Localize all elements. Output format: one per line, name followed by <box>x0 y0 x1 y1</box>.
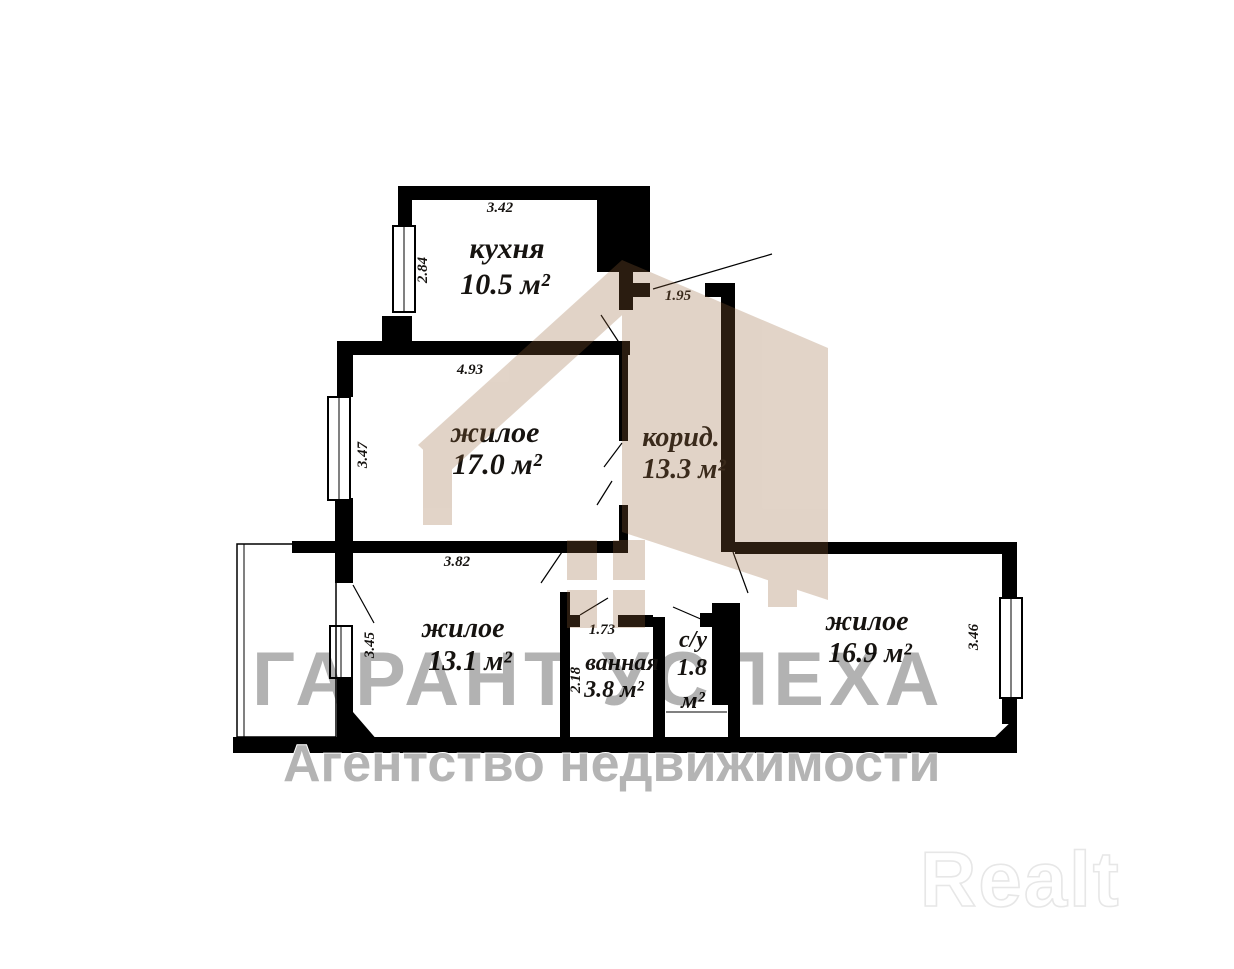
dim-kitchen-height: 2.84 <box>415 256 431 284</box>
dim-living2-width: 3.82 <box>443 554 471 570</box>
wc-door-leaf <box>673 607 703 620</box>
floor-plan-stage: кухня 10.5 м² жилое 17.0 м² корид. 13.3 … <box>0 0 1234 964</box>
house-chimney-stub <box>768 545 797 607</box>
house-window-pane <box>613 590 645 628</box>
living1-door-leaf-a <box>604 443 622 467</box>
living2-door-leaf <box>541 549 564 583</box>
house-watermark <box>418 260 828 628</box>
room-label-kitchen: кухня <box>469 232 544 265</box>
house-roof-leg <box>423 443 452 525</box>
room-area-kitchen: 10.5 м² <box>460 268 551 301</box>
watermark-agency-name: ГАРАНТ УСПЕХА <box>252 642 992 718</box>
realt-logo: Realt <box>920 840 1121 918</box>
house-window-pane <box>567 540 597 580</box>
balcony-door-leaf <box>353 585 374 623</box>
dim-living1-width: 4.93 <box>456 362 484 378</box>
living1-door-leaf-b <box>597 481 612 505</box>
house-window-pane <box>567 590 597 628</box>
dim-living1-height: 3.47 <box>355 441 371 469</box>
house-window-pane <box>613 540 645 580</box>
floor-plan-page: { "plan": { "rooms": { "kitchen": {"name… <box>0 0 1234 964</box>
dim-kitchen-width: 3.42 <box>486 200 514 216</box>
room-label-living3: жилое <box>824 606 908 637</box>
floor-plan: кухня 10.5 м² жилое 17.0 м² корид. 13.3 … <box>0 0 1234 964</box>
watermark-agency-tagline: Агентство недвижимости <box>283 738 983 790</box>
house-wall-parallelogram <box>622 260 828 600</box>
